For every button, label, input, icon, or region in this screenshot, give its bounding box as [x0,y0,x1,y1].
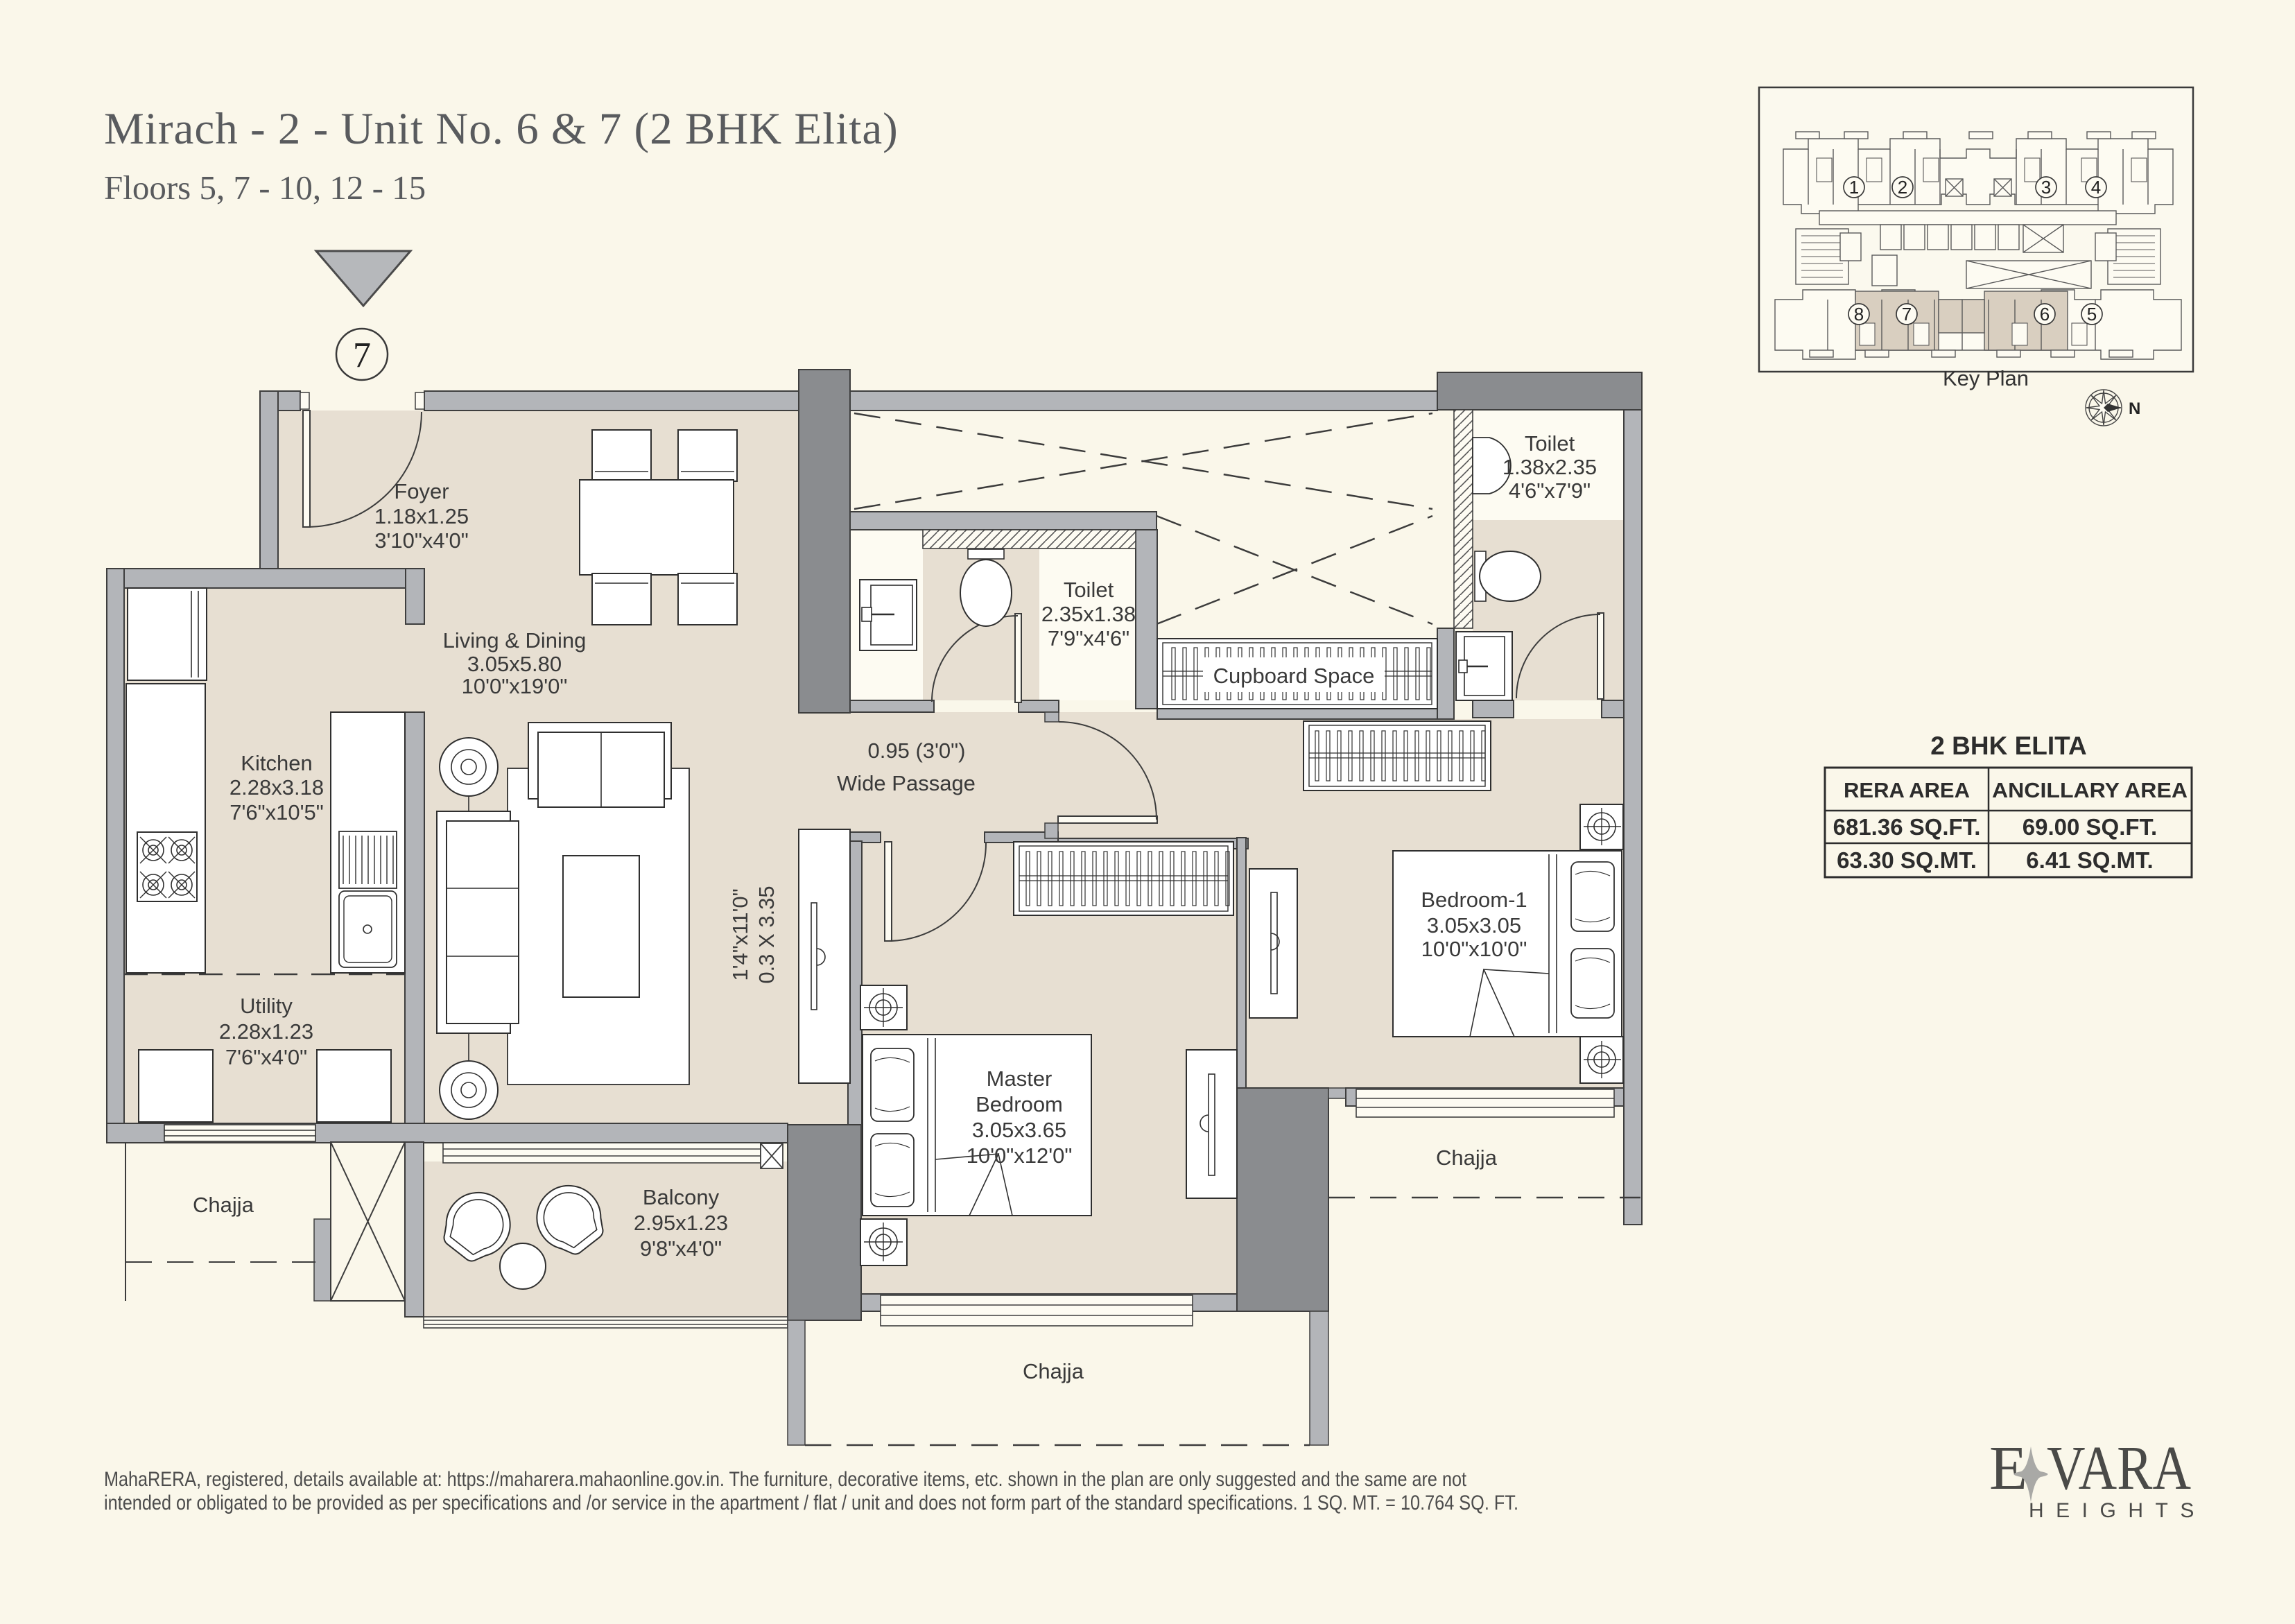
svg-text:Chajja: Chajja [1023,1359,1084,1383]
svg-text:Wide Passage: Wide Passage [837,771,976,795]
svg-text:intended or obligated to be pr: intended or obligated to be provided as … [104,1492,1518,1514]
svg-text:Bedroom: Bedroom [976,1092,1063,1116]
svg-text:3'10"x4'0": 3'10"x4'0" [374,528,469,553]
svg-text:Toilet: Toilet [1525,431,1575,456]
svg-text:Utility: Utility [240,994,293,1018]
svg-text:Cupboard Space: Cupboard Space [1213,664,1375,688]
svg-text:2.28x3.18: 2.28x3.18 [230,775,324,800]
svg-text:HEIGHTS: HEIGHTS [2029,1499,2206,1522]
svg-text:2.95x1.23: 2.95x1.23 [634,1211,728,1235]
svg-text:Chajja: Chajja [1436,1146,1498,1170]
svg-text:63.30 SQ.MT.: 63.30 SQ.MT. [1837,847,1977,873]
svg-text:7: 7 [1902,304,1912,325]
svg-text:6: 6 [2040,304,2050,325]
svg-text:Living & Dining: Living & Dining [443,628,587,653]
svg-text:7: 7 [353,336,371,375]
svg-text:1'4"x11'0": 1'4"x11'0" [728,888,752,981]
svg-text:5: 5 [2087,304,2097,325]
svg-text:2 BHK ELITA: 2 BHK ELITA [1930,732,2086,760]
svg-text:3.05x3.65: 3.05x3.65 [972,1118,1066,1142]
svg-text:3.05x5.80: 3.05x5.80 [467,652,562,676]
svg-text:Bedroom-1: Bedroom-1 [1421,888,1527,912]
svg-text:MahaRERA, registered, details: MahaRERA, registered, details available … [104,1468,1467,1491]
svg-text:4: 4 [2091,177,2101,198]
svg-text:8: 8 [1854,304,1864,325]
svg-text:69.00 SQ.FT.: 69.00 SQ.FT. [2023,814,2157,840]
svg-text:Chajja: Chajja [193,1193,254,1217]
svg-text:7'6"x10'5": 7'6"x10'5" [230,800,324,824]
svg-text:1.18x1.25: 1.18x1.25 [374,504,469,528]
svg-text:ANCILLARY AREA: ANCILLARY AREA [1992,778,2188,802]
svg-text:Toilet: Toilet [1064,578,1114,602]
svg-text:10'0"x19'0": 10'0"x19'0" [462,674,568,698]
svg-text:2.28x1.23: 2.28x1.23 [219,1019,313,1044]
svg-text:Mirach - 2 - Unit No. 6 & 7 (2: Mirach - 2 - Unit No. 6 & 7 (2 BHK Elita… [104,104,899,154]
svg-text:0.95 (3'0"): 0.95 (3'0") [868,738,966,763]
svg-text:6.41 SQ.MT.: 6.41 SQ.MT. [2026,847,2153,873]
svg-text:RERA AREA: RERA AREA [1844,778,1970,802]
svg-text:Kitchen: Kitchen [241,751,312,775]
svg-text:Key Plan: Key Plan [1943,366,2029,390]
svg-text:Floors 5, 7 - 10, 12 - 15: Floors 5, 7 - 10, 12 - 15 [104,169,426,207]
svg-text:10'0"x10'0": 10'0"x10'0" [1421,937,1527,961]
svg-text:7'6"x4'0": 7'6"x4'0" [225,1045,307,1069]
svg-text:Balcony: Balcony [643,1185,720,1209]
svg-text:Foyer: Foyer [394,479,449,503]
svg-text:E: E [1989,1434,2027,1503]
svg-text:1.38x2.35: 1.38x2.35 [1502,455,1597,479]
svg-text:3.05x3.05: 3.05x3.05 [1427,913,1521,938]
svg-text:7'9"x4'6": 7'9"x4'6" [1048,626,1129,650]
svg-text:681.36 SQ.FT.: 681.36 SQ.FT. [1833,814,1981,840]
svg-text:10'0"x12'0": 10'0"x12'0" [967,1143,1073,1168]
svg-text:2: 2 [1898,177,1907,198]
svg-text:2.35x1.38: 2.35x1.38 [1041,602,1136,626]
svg-text:9'8"x4'0": 9'8"x4'0" [640,1236,722,1261]
svg-text:Master: Master [987,1066,1053,1091]
svg-text:N: N [2129,399,2140,418]
svg-text:0.3 X 3.35: 0.3 X 3.35 [754,886,779,983]
svg-text:VARA: VARA [2047,1434,2191,1503]
svg-text:3: 3 [2041,177,2051,198]
svg-text:1: 1 [1849,177,1859,198]
svg-text:4'6"x7'9": 4'6"x7'9" [1509,478,1591,503]
